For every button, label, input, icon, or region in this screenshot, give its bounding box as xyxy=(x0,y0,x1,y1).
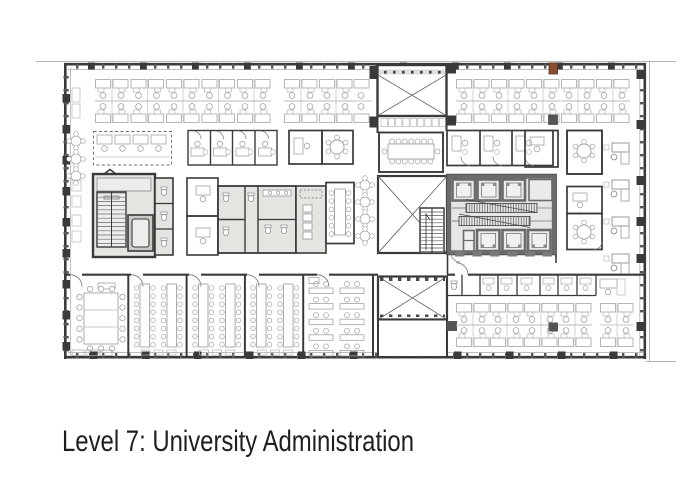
svg-text:Level 7: University Administra: Level 7: University Administration xyxy=(62,425,414,458)
